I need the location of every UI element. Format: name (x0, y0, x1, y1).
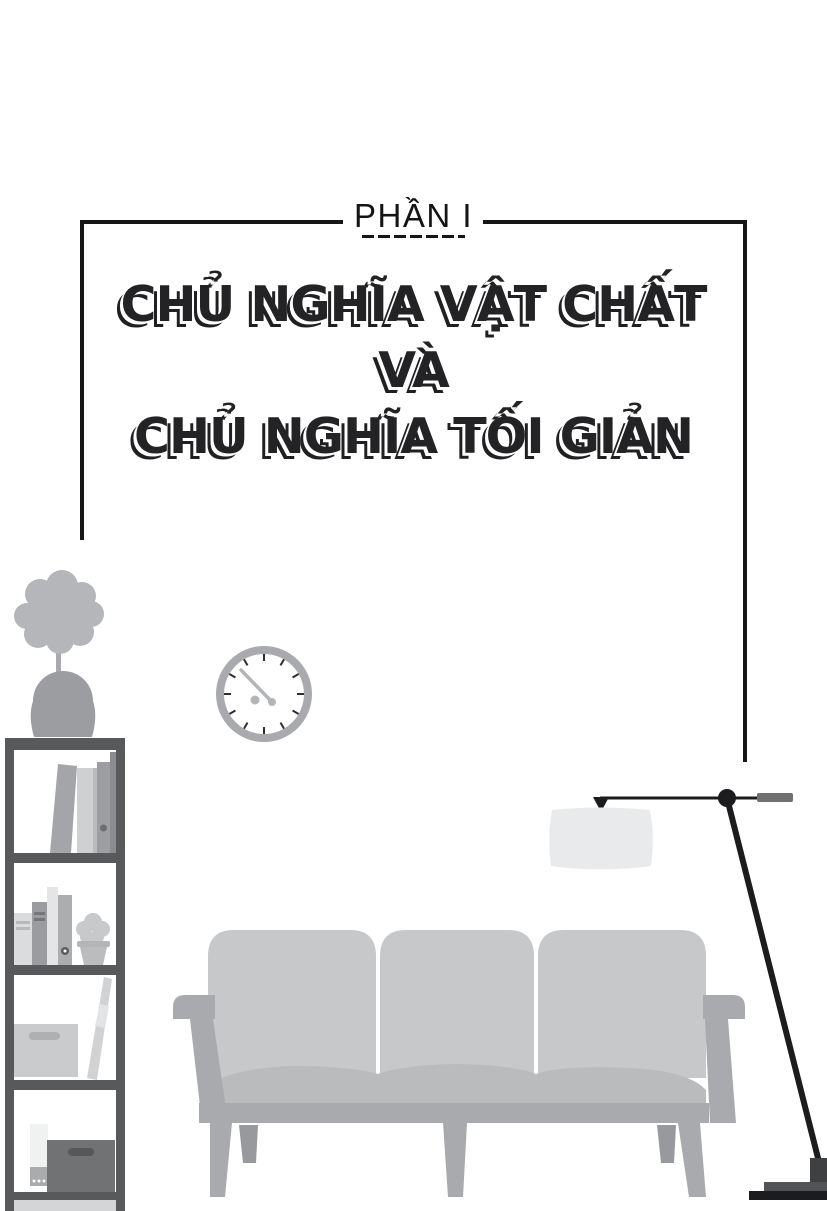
living-room-illustration (0, 0, 827, 1211)
sofa-frame-bar (199, 1103, 709, 1123)
lamp-counterweight (757, 793, 793, 802)
book-page: PHẦN I CHỦ NGHĨA VẬT CHẤT VÀ CHỦ NGHĨA T… (0, 0, 827, 1211)
sofa-front-leg-left (210, 1123, 232, 1197)
shelf-books-row-2 (14, 887, 110, 965)
sofa-front-leg-middle (443, 1123, 467, 1197)
lamp-pole (727, 798, 819, 1162)
shelf-storage-box (12, 977, 112, 1080)
sofa-back-cushions (208, 930, 706, 1078)
shelf-plinth (14, 1200, 116, 1211)
shelf-books-row-1 (50, 752, 117, 853)
wall-clock (216, 646, 312, 742)
potted-plant (14, 570, 104, 737)
shelf-bottom-items (30, 1124, 115, 1200)
lamp-shade (549, 808, 653, 870)
sofa-back-leg-left (239, 1125, 258, 1163)
shelf-mini-plant (76, 913, 110, 965)
sofa-back-leg-right (657, 1125, 676, 1163)
plant-foliage (14, 570, 104, 654)
lamp-pivot (718, 789, 736, 807)
sofa-armrest-right (703, 995, 745, 1123)
bookshelf (5, 738, 125, 1211)
sofa (173, 930, 745, 1197)
lamp-base (749, 1158, 827, 1200)
plant-pot (31, 671, 96, 737)
sofa-front-leg-right (678, 1123, 706, 1197)
